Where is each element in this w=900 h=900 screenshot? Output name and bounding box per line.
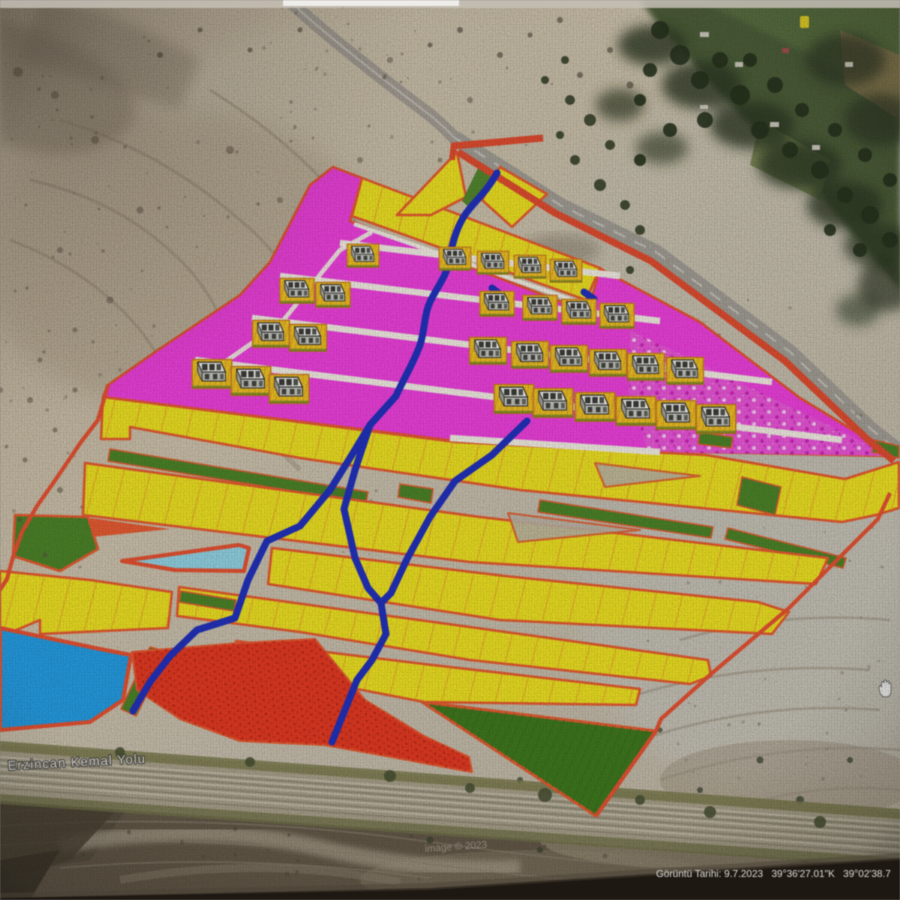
svg-text:Görüntü Tarihi: 9.7.2023 39°: Görüntü Tarihi: 9.7.2023 39°36'27.01"K 3… [656, 869, 891, 880]
